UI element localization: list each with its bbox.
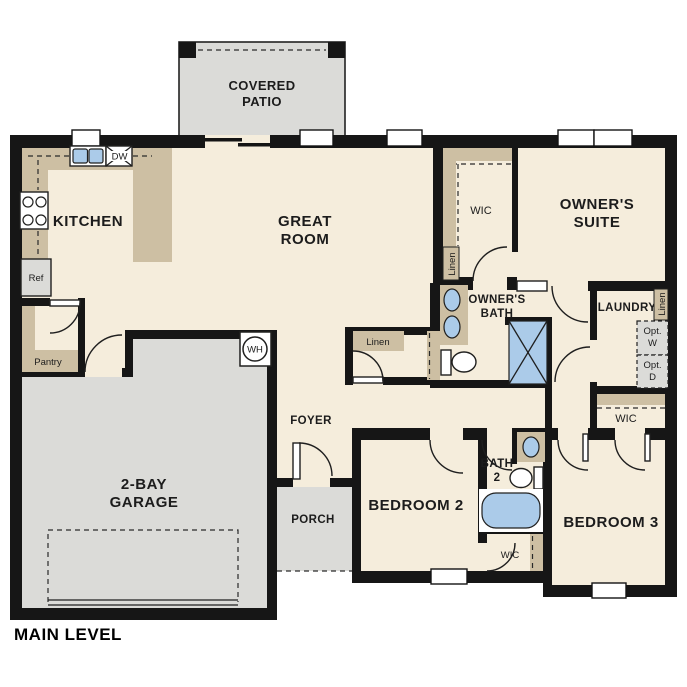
window-great-room-1 <box>300 130 333 146</box>
water-heater-label: WH <box>247 345 263 356</box>
owners-shower <box>509 321 547 384</box>
bedroom3-door-jamb <box>583 434 588 461</box>
window-great-room-2 <box>387 130 422 146</box>
bath2-label-line2: 2 <box>494 472 501 484</box>
floor-plan-svg: COVERED PATIO <box>0 0 687 687</box>
kitchen-label: KITCHEN <box>53 213 123 230</box>
foyer-label: FOYER <box>290 415 332 427</box>
window-bedroom2 <box>431 569 467 584</box>
optional-washer: Opt. W <box>637 321 668 355</box>
bath2-sink <box>523 437 539 457</box>
floor-plan: COVERED PATIO <box>0 0 687 687</box>
great-room-label-line1: GREAT <box>278 213 332 230</box>
great-room-label-line2: ROOM <box>281 231 330 248</box>
porch-label: PORCH <box>291 514 335 526</box>
optional-dryer: Opt. D <box>637 355 668 388</box>
porch-slab <box>277 487 352 571</box>
bedroom3-wic-door-jamb <box>645 434 650 461</box>
laundry-label: LAUNDRY <box>598 302 657 314</box>
bedroom3-wic-shelf <box>597 394 665 405</box>
hall-linen-label: Linen <box>366 337 389 348</box>
svg-text:Opt.: Opt. <box>644 326 662 337</box>
refrigerator-label: Ref <box>29 273 44 284</box>
dishwasher: DW <box>106 146 132 166</box>
owners-bath-label-line1: OWNER'S <box>468 294 525 306</box>
bath2-tub <box>482 493 540 528</box>
garage-slab <box>22 339 267 608</box>
garage-label-line2: GARAGE <box>110 494 179 511</box>
owners-bath-label-line2: BATH <box>481 308 514 320</box>
kitchen-sink <box>70 146 106 166</box>
front-door-panel <box>293 443 300 479</box>
water-heater: WH <box>240 332 271 366</box>
plan-title: MAIN LEVEL <box>14 625 122 644</box>
bedroom2-label: BEDROOM 2 <box>368 497 463 514</box>
owners-bath-sink-2 <box>444 316 460 338</box>
patio-post-right <box>328 42 345 58</box>
bedroom3-label: BEDROOM 3 <box>563 514 658 531</box>
owners-bath-sink-1 <box>444 289 460 311</box>
owners-wic-label: WIC <box>470 205 491 217</box>
patio-label-line2: PATIO <box>242 94 282 109</box>
sliding-patio-door <box>205 135 270 148</box>
covered-patio: COVERED PATIO <box>179 42 345 138</box>
bath2-label-line1: BATH <box>481 458 514 470</box>
window-owners-suite-1 <box>558 130 594 146</box>
wic-rod-left <box>443 161 456 247</box>
wic-linen-label: Linen <box>447 252 458 275</box>
pantry-door-panel <box>50 300 80 306</box>
svg-text:Opt.: Opt. <box>644 360 662 371</box>
owners-suite-label-line2: SUITE <box>574 214 621 231</box>
svg-text:W: W <box>648 338 657 349</box>
dishwasher-label: DW <box>112 152 128 163</box>
owners-suite-label-line1: OWNER'S <box>560 196 635 213</box>
wic-shelf-top <box>443 148 512 161</box>
patio-label-line1: COVERED <box>228 78 295 93</box>
window-bedroom3 <box>592 583 626 598</box>
laundry-linen-label: Linen <box>657 292 668 315</box>
window-kitchen <box>72 130 100 146</box>
pantry-label: Pantry <box>34 357 62 368</box>
bedroom3-wic-label: WIC <box>615 413 636 425</box>
svg-text:D: D <box>649 372 656 383</box>
bath2-toilet <box>510 467 543 489</box>
bath-cased-opening <box>517 281 547 291</box>
kitchen-island <box>133 163 172 262</box>
patio-post-left <box>179 42 196 58</box>
window-owners-suite-2 <box>594 130 632 146</box>
linen-door-panel <box>353 377 383 383</box>
garage-label-line1: 2-BAY <box>121 476 167 493</box>
refrigerator: Ref <box>21 259 51 296</box>
stove <box>20 192 48 229</box>
